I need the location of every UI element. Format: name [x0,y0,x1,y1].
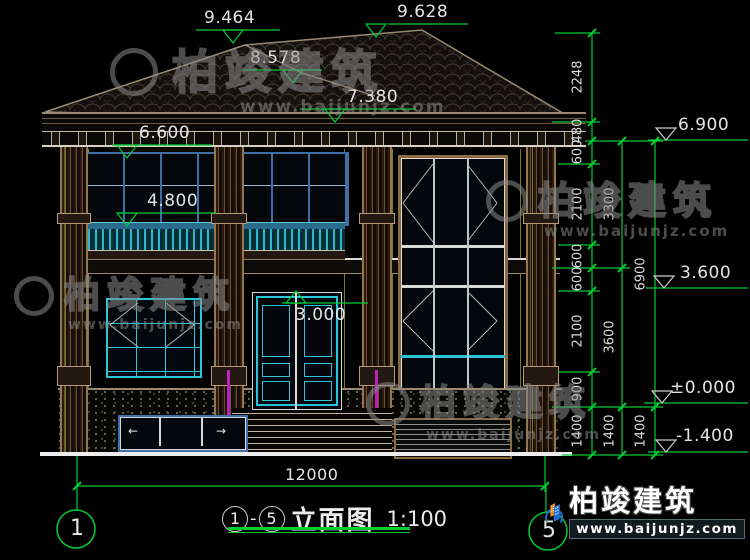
brand-logo-site: www.baijunjz.com [569,519,745,539]
dim-label: 600 [571,267,586,292]
elevation-drawing-canvas: ← → [0,0,750,560]
brand-logo: 柏竣建筑 www.baijunjz.com [545,470,745,555]
dim-label: 1400 [603,414,618,447]
dim-label: 2100 [571,187,586,220]
elevation-label: ±0.000 [670,378,736,398]
dim-label: 600 [571,140,586,165]
axis-bubble-left: 1 [70,516,85,541]
brand-logo-name: 柏竣建筑 [569,486,745,518]
dim-label: 2100 [571,314,586,347]
elevation-label: 3.000 [295,305,346,325]
dim-label: 3300 [603,187,618,220]
dim-label: 3600 [603,320,618,353]
elevation-label: -1.400 [676,426,734,446]
dim-label: 6900 [634,257,649,290]
title-dash: - [250,508,257,529]
elevation-label: 8.578 [250,48,301,68]
elevation-label: 3.600 [680,263,731,283]
title-underline-thick [228,527,410,530]
dim-label: 900 [571,377,586,402]
brand-logo-icon [545,475,563,551]
elevation-label: 4.800 [147,191,198,211]
title-underline-thin [228,532,410,533]
elevation-label: 6.600 [139,123,190,143]
dim-label: 1400 [634,414,649,447]
dim-label: 600 [571,244,586,269]
elevation-label: 7.380 [347,87,398,107]
elevation-label: 9.464 [204,8,255,28]
elevation-label: 9.628 [397,2,448,22]
elevation-label: 6.900 [678,115,729,135]
dim-label-bottom: 12000 [285,465,338,484]
dim-label: 1400 [571,414,586,447]
dim-label: 2248 [571,60,586,93]
